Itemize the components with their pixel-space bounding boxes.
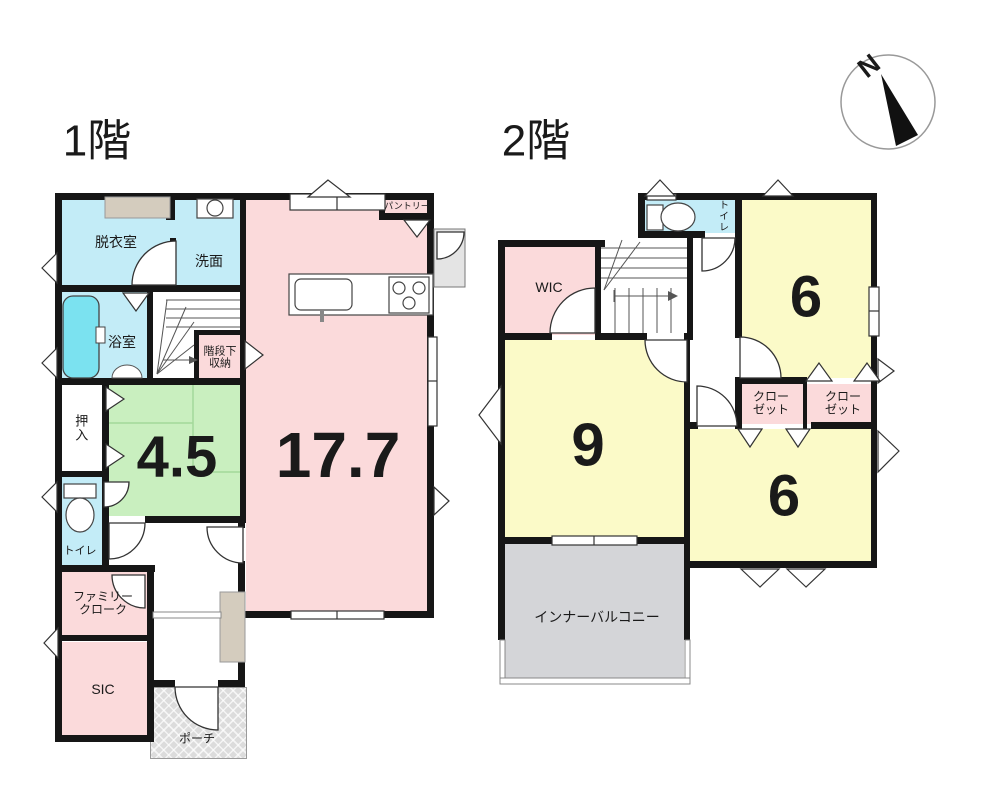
label-tatami-size: 4.5 bbox=[137, 426, 218, 491]
label-oshiire: 押入 bbox=[73, 414, 88, 442]
room-ldk bbox=[246, 200, 427, 611]
label-closet-right: クロー ゼット bbox=[825, 391, 861, 418]
label-under-stair-storage: 階段下 収納 bbox=[204, 346, 237, 371]
label-porch: ポーチ bbox=[179, 732, 215, 745]
laundry-counter bbox=[105, 197, 170, 218]
compass bbox=[841, 55, 935, 149]
label-ldk-size: 17.7 bbox=[276, 420, 401, 492]
label-6-upper: 6 bbox=[790, 266, 822, 331]
label-pantry: パントリー bbox=[384, 201, 429, 211]
toilet-fixture-1f bbox=[64, 484, 96, 532]
label-inner-balcony: インナーバルコニー bbox=[534, 610, 660, 626]
door-ldk bbox=[207, 527, 243, 563]
label-washroom: 洗面 bbox=[195, 254, 223, 270]
label-9: 9 bbox=[571, 411, 604, 478]
label-family-cloak: ファミリー クローク bbox=[73, 591, 133, 618]
genkan-step bbox=[153, 612, 221, 618]
stairs-2f-arrow-head bbox=[668, 291, 678, 301]
door-toilet-2f bbox=[702, 238, 735, 271]
label-sic: SIC bbox=[91, 682, 114, 698]
label-toilet-1f: トイレ bbox=[64, 545, 97, 557]
label-toilet-2f: トイレ bbox=[716, 200, 727, 233]
kitchen-counter bbox=[289, 274, 433, 322]
floor1-title: 1階 bbox=[63, 116, 131, 165]
floor2-title: 2階 bbox=[502, 116, 570, 165]
label-bathroom: 浴室 bbox=[108, 335, 136, 351]
label-dressing: 脱衣室 bbox=[95, 235, 137, 251]
stairs-2f bbox=[601, 240, 687, 333]
kitchen-faucet bbox=[320, 310, 324, 322]
door-entrance bbox=[175, 687, 218, 730]
kitchen-sink bbox=[295, 279, 352, 310]
floor-plan-page: 1階 2階 脱衣室 洗面 浴室 階段下 収納 パントリー 押入 4.5 17.7… bbox=[0, 0, 1000, 793]
door-6-lower bbox=[697, 386, 737, 426]
bathtub bbox=[63, 296, 99, 378]
washbasin bbox=[197, 199, 233, 218]
label-6-lower: 6 bbox=[768, 465, 800, 530]
door-tatami bbox=[109, 523, 145, 559]
label-wic: WIC bbox=[535, 280, 562, 296]
bathtub-handle bbox=[96, 327, 105, 343]
shoe-cabinet bbox=[220, 592, 245, 662]
toilet-fixture-2f bbox=[647, 203, 695, 231]
label-closet-left: クロー ゼット bbox=[753, 391, 789, 418]
